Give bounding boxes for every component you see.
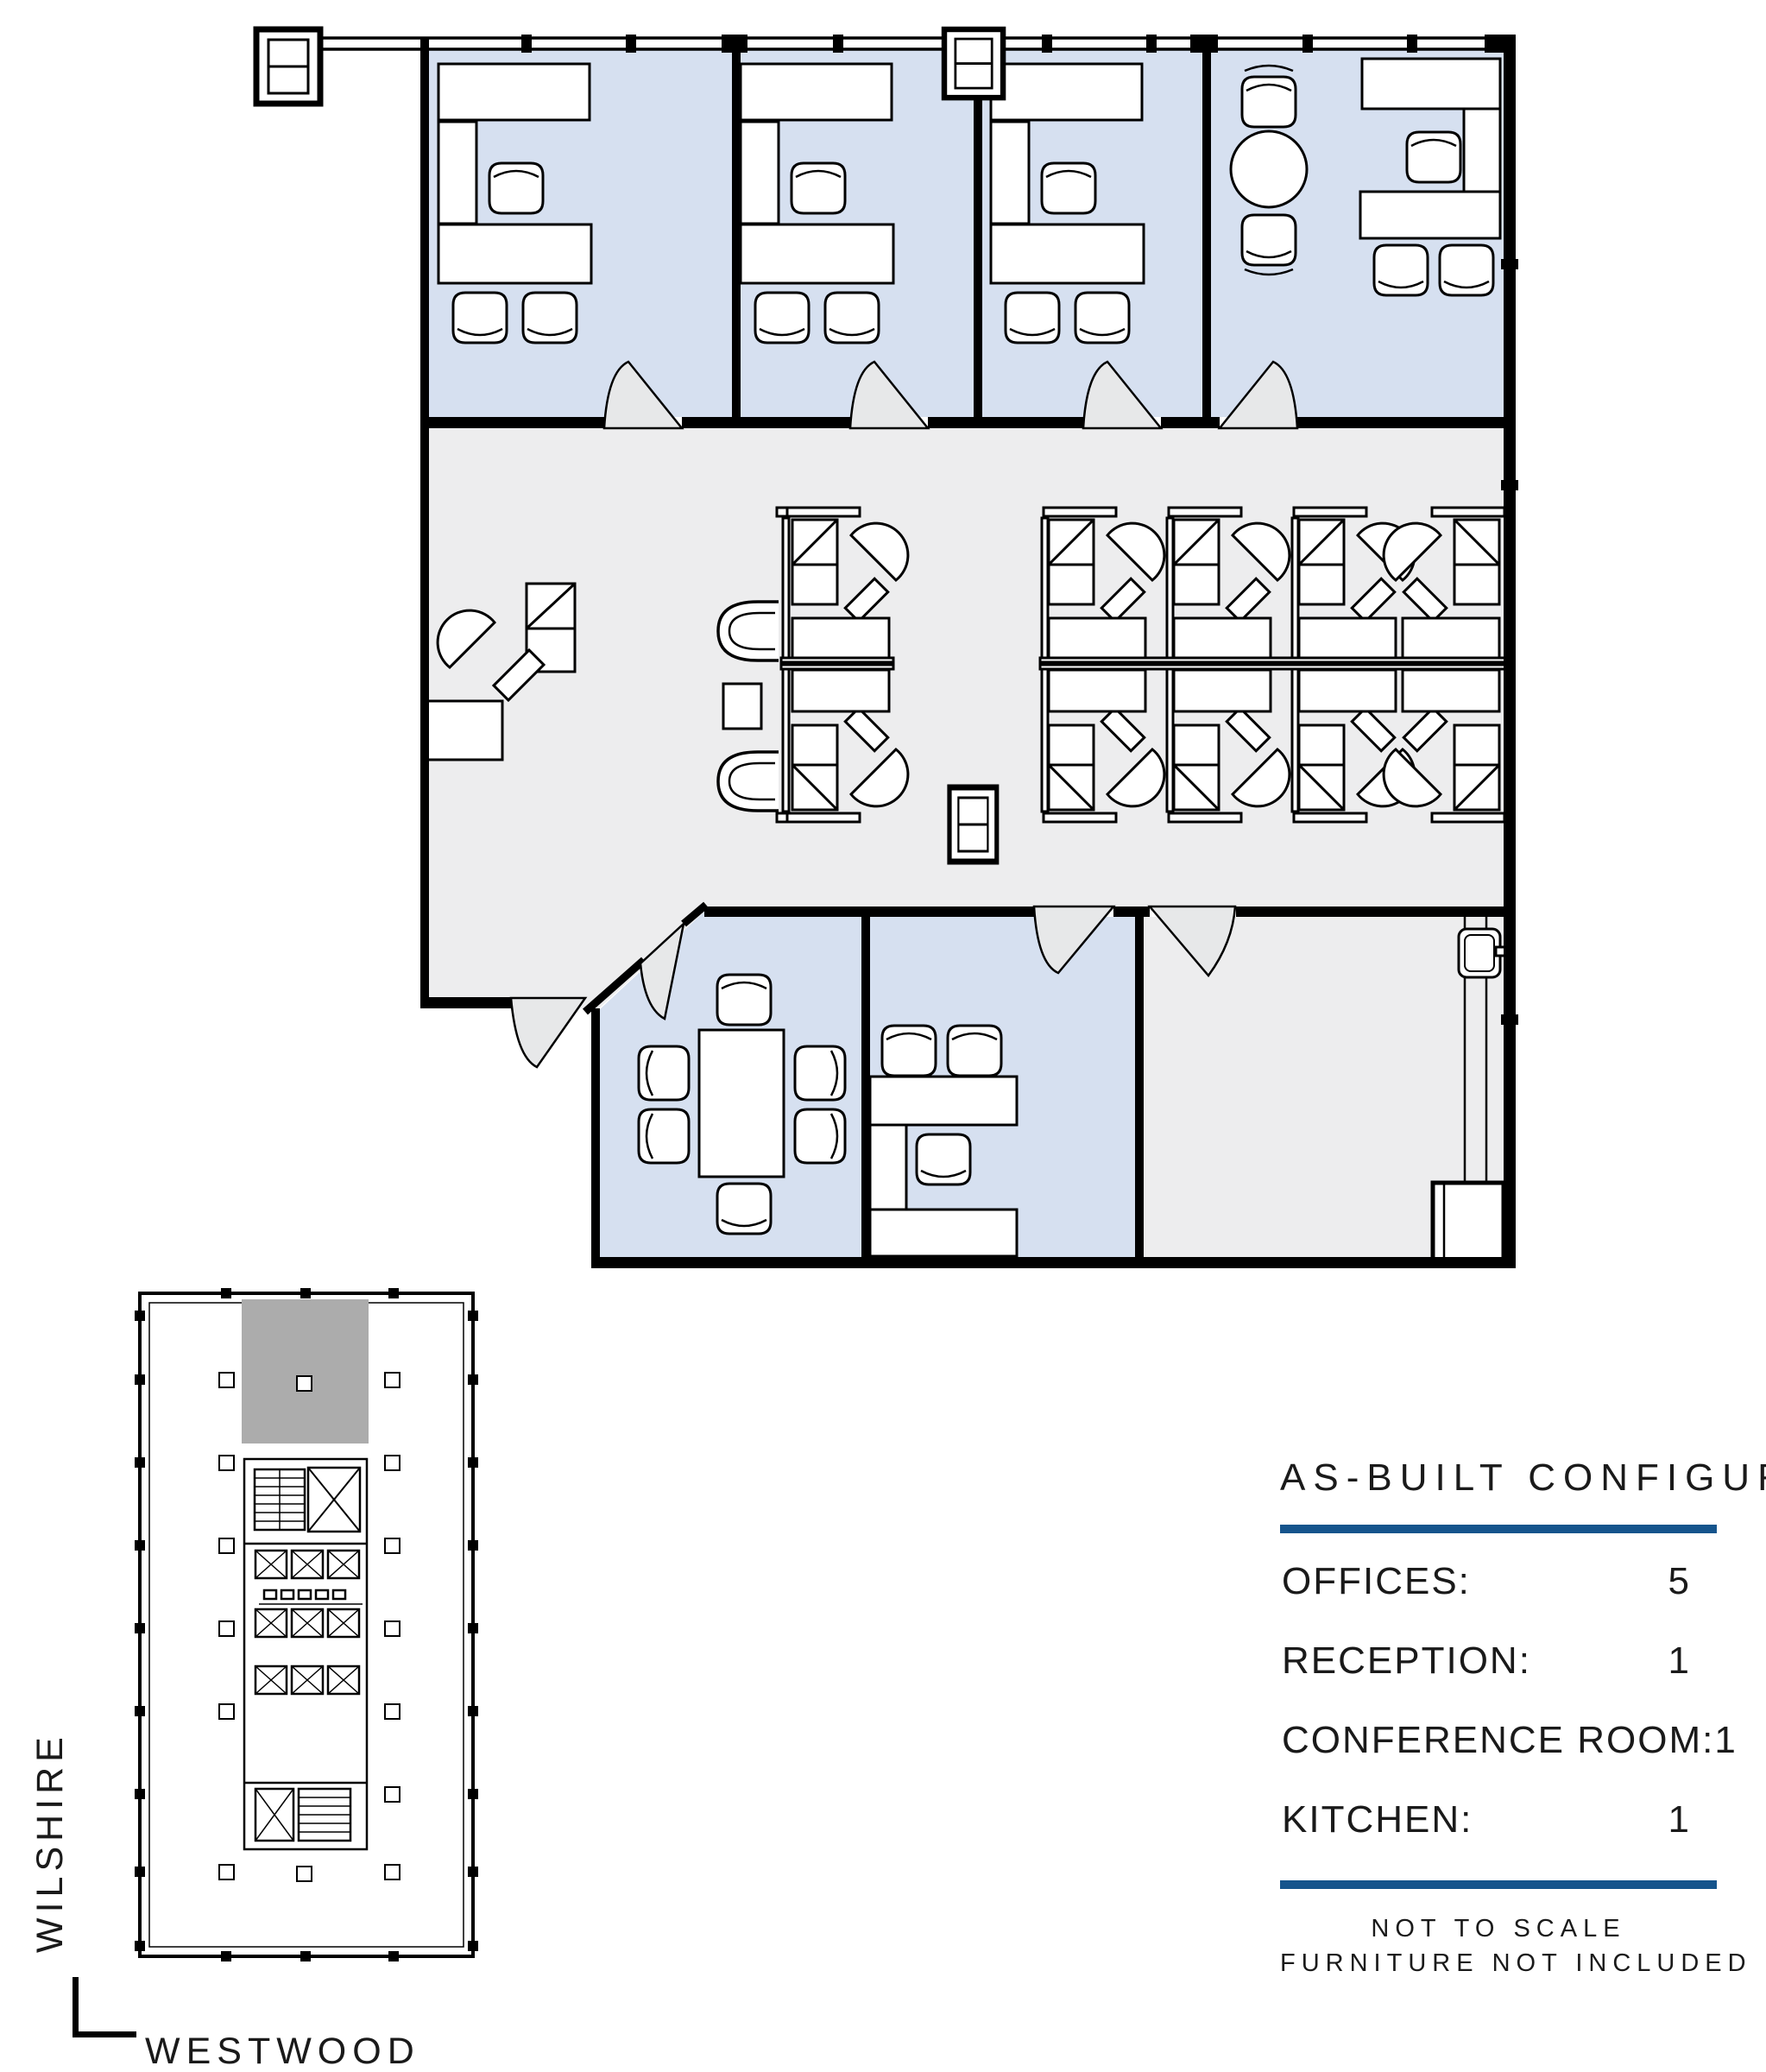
legend-notes: NOT TO SCALE FURNITURE NOT INCLUDED — [1280, 1911, 1717, 1980]
door-swing-icon — [511, 998, 585, 1067]
lounge-chair-icon — [718, 752, 779, 811]
legend-label: KITCHEN: — [1280, 1801, 1473, 1839]
legend-row-offices: OFFICES: 5 — [1280, 1563, 1717, 1601]
legend-row-reception: RECEPTION: 1 — [1280, 1642, 1717, 1680]
elevator-bank-3 — [255, 1666, 359, 1694]
as-built-floor-plan-sheet: WILSHIRE WESTWOOD AS-BUILT CONFIGURATION… — [0, 0, 1766, 2072]
stair-icon — [299, 1789, 350, 1841]
note-furniture: FURNITURE NOT INCLUDED — [1280, 1946, 1717, 1980]
street-label-wilshire: WILSHIRE — [29, 1732, 72, 1953]
sink-icon — [1459, 929, 1508, 977]
refrigerator — [1433, 1183, 1504, 1262]
elevator-bank-2 — [255, 1609, 359, 1637]
lounge-chair-icon — [718, 602, 779, 660]
legend-title: AS-BUILT CONFIGURATION — [1280, 1456, 1717, 1500]
legend-label: CONFERENCE ROOM: — [1280, 1721, 1714, 1759]
column-marker-icon — [949, 787, 997, 862]
note-not-to-scale: NOT TO SCALE — [1280, 1911, 1717, 1946]
street-corner-bracket — [73, 1977, 79, 2037]
legend-label: RECEPTION: — [1280, 1642, 1531, 1680]
elevator-bank-1 — [255, 1551, 359, 1578]
legend-value: 5 — [1668, 1563, 1717, 1601]
column-marker-icon — [944, 29, 1003, 98]
legend-label: OFFICES: — [1280, 1563, 1471, 1601]
legend-panel: AS-BUILT CONFIGURATION OFFICES: 5 RECEPT… — [1280, 1456, 1717, 1980]
street-corner-bracket — [73, 2031, 136, 2037]
elevator-icon — [308, 1468, 360, 1532]
conference-table — [699, 1030, 784, 1177]
legend-value: 1 — [1714, 1721, 1763, 1759]
legend-rows: OFFICES: 5 RECEPTION: 1 CONFERENCE ROOM:… — [1280, 1563, 1717, 1839]
elevator-icon — [255, 1789, 293, 1841]
office-4-round-table-group — [1231, 66, 1307, 275]
street-label-westwood: WESTWOOD — [145, 2031, 420, 2072]
legend-value: 1 — [1668, 1642, 1717, 1680]
legend-row-conference: CONFERENCE ROOM: 1 — [1280, 1721, 1717, 1759]
stair-icon — [255, 1469, 305, 1530]
suite-highlight — [242, 1299, 369, 1443]
column-marker-icon — [256, 29, 320, 104]
round-table-icon — [1231, 131, 1307, 207]
key-plan — [135, 1288, 478, 1961]
legend-row-kitchen: KITCHEN: 1 — [1280, 1801, 1717, 1839]
legend-rule — [1280, 1525, 1717, 1533]
legend-rule — [1280, 1880, 1717, 1889]
building-core — [244, 1459, 367, 1849]
side-table — [723, 684, 761, 729]
legend-value: 1 — [1668, 1801, 1717, 1839]
